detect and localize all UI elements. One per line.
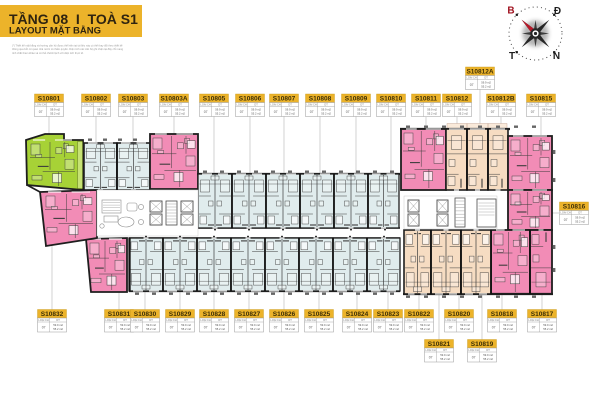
svg-text:S10817: S10817 xyxy=(531,311,554,318)
svg-text:DT: DT xyxy=(361,318,365,322)
svg-text:59.9 m2: 59.9 m2 xyxy=(575,216,585,220)
svg-text:DT: DT xyxy=(218,318,222,322)
svg-text:DT: DT xyxy=(149,318,153,322)
svg-text:DT: DT xyxy=(178,103,182,107)
svg-text:59.9 m2: 59.9 m2 xyxy=(251,108,261,112)
svg-text:07: 07 xyxy=(135,325,139,329)
svg-text:LOẠI CH: LOẠI CH xyxy=(200,318,211,322)
svg-text:DT: DT xyxy=(324,103,328,107)
svg-text:07: 07 xyxy=(42,325,46,329)
svg-text:LOẠI CH: LOẠI CH xyxy=(306,103,317,107)
svg-text:55.2 m2: 55.2 m2 xyxy=(483,357,493,361)
svg-text:59.9 m2: 59.9 m2 xyxy=(250,323,260,327)
svg-text:N: N xyxy=(553,51,560,62)
svg-text:S10811: S10811 xyxy=(415,96,437,103)
svg-text:07: 07 xyxy=(470,83,474,87)
svg-text:DT: DT xyxy=(123,318,127,322)
svg-text:LOẠI CH: LOẠI CH xyxy=(235,318,246,322)
svg-text:LOẠI CH: LOẠI CH xyxy=(425,348,436,352)
svg-text:S10827: S10827 xyxy=(238,311,261,318)
svg-text:S10809: S10809 xyxy=(345,96,368,103)
svg-text:S10822: S10822 xyxy=(408,311,431,318)
svg-text:55.2 m2: 55.2 m2 xyxy=(215,112,225,116)
svg-text:55.2 m2: 55.2 m2 xyxy=(146,327,156,331)
svg-text:59.9 m2: 59.9 m2 xyxy=(460,323,470,327)
svg-text:LOẠI CH: LOẠI CH xyxy=(343,318,354,322)
svg-text:thông qua bởi cơ quan nhà nước: thông qua bởi cơ quan nhà nước có thẩm q… xyxy=(12,47,124,51)
svg-text:LOẠI CH: LOẠI CH xyxy=(528,318,539,322)
svg-text:S10830: S10830 xyxy=(134,311,157,318)
svg-text:DT: DT xyxy=(505,103,509,107)
svg-text:DT: DT xyxy=(323,318,327,322)
svg-text:LAYOUT MẶT BẰNG: LAYOUT MẶT BẰNG xyxy=(9,26,101,37)
svg-text:LOẠI CH: LOẠI CH xyxy=(82,103,93,107)
svg-text:59.9 m2: 59.9 m2 xyxy=(50,108,60,112)
svg-text:59.9 m2: 59.9 m2 xyxy=(357,108,367,112)
svg-text:07: 07 xyxy=(492,325,496,329)
svg-text:07: 07 xyxy=(204,325,208,329)
svg-text:59.9 m2: 59.9 m2 xyxy=(321,108,331,112)
svg-text:59.9 m2: 59.9 m2 xyxy=(502,108,512,112)
svg-text:07: 07 xyxy=(416,110,420,114)
svg-text:S10816: S10816 xyxy=(563,204,586,211)
svg-text:LOẠI CH: LOẠI CH xyxy=(560,211,571,215)
svg-text:DT: DT xyxy=(53,103,57,107)
svg-text:LOẠI CH: LOẠI CH xyxy=(270,318,281,322)
svg-text:DT: DT xyxy=(545,103,549,107)
svg-text:S10810: S10810 xyxy=(380,96,403,103)
svg-text:59.9 m2: 59.9 m2 xyxy=(285,323,295,327)
svg-text:DT: DT xyxy=(443,348,447,352)
svg-text:LOẠI CH: LOẠI CH xyxy=(119,103,130,107)
svg-text:59.9 m2: 59.9 m2 xyxy=(53,323,63,327)
svg-text:55.2 m2: 55.2 m2 xyxy=(181,327,191,331)
svg-text:55.2 m2: 55.2 m2 xyxy=(97,112,107,116)
svg-text:59.9 m2: 59.9 m2 xyxy=(120,323,130,327)
svg-text:59.9 m2: 59.9 m2 xyxy=(392,108,402,112)
svg-text:S10801: S10801 xyxy=(38,96,61,103)
svg-text:59.9 m2: 59.9 m2 xyxy=(440,353,450,357)
svg-text:LOẠI CH: LOẠI CH xyxy=(200,103,211,107)
svg-text:55.2 m2: 55.2 m2 xyxy=(502,112,512,116)
svg-text:B: B xyxy=(507,6,514,17)
svg-text:55.2 m2: 55.2 m2 xyxy=(420,327,430,331)
svg-text:LOẠI CH: LOẠI CH xyxy=(412,103,423,107)
svg-text:S10828: S10828 xyxy=(203,311,226,318)
svg-text:DT: DT xyxy=(254,103,258,107)
svg-text:59.9 m2: 59.9 m2 xyxy=(483,353,493,357)
svg-text:07: 07 xyxy=(239,325,243,329)
svg-text:55.2 m2: 55.2 m2 xyxy=(285,327,295,331)
svg-text:55.2 m2: 55.2 m2 xyxy=(440,357,450,361)
svg-text:55.2 m2: 55.2 m2 xyxy=(503,327,513,331)
svg-text:tính chất tham khảo và có thể: tính chất tham khảo và có thể chênh lệch… xyxy=(12,51,84,55)
svg-text:S10819: S10819 xyxy=(471,341,494,348)
svg-text:55.2 m2: 55.2 m2 xyxy=(50,112,60,116)
svg-text:07: 07 xyxy=(381,110,385,114)
svg-text:59.9 m2: 59.9 m2 xyxy=(175,108,185,112)
svg-text:07: 07 xyxy=(472,355,476,359)
svg-text:S10812: S10812 xyxy=(446,96,469,103)
svg-text:07: 07 xyxy=(109,325,113,329)
svg-text:S10824: S10824 xyxy=(346,311,369,318)
svg-text:LOẠI CH: LOẠI CH xyxy=(445,318,456,322)
svg-text:S10820: S10820 xyxy=(448,311,471,318)
svg-text:07: 07 xyxy=(123,110,127,114)
svg-text:DT: DT xyxy=(253,318,257,322)
svg-text:55.2 m2: 55.2 m2 xyxy=(285,112,295,116)
svg-text:59.9 m2: 59.9 m2 xyxy=(215,108,225,112)
svg-text:07: 07 xyxy=(429,355,433,359)
svg-text:55.2 m2: 55.2 m2 xyxy=(460,327,470,331)
svg-text:DT: DT xyxy=(288,318,292,322)
svg-text:DT: DT xyxy=(486,348,490,352)
svg-text:07: 07 xyxy=(532,325,536,329)
svg-text:LOẠI CH: LOẠI CH xyxy=(166,318,177,322)
svg-text:55.2 m2: 55.2 m2 xyxy=(543,327,553,331)
svg-text:07: 07 xyxy=(240,110,244,114)
svg-text:LOẠI CH: LOẠI CH xyxy=(160,103,171,107)
svg-text:59.9 m2: 59.9 m2 xyxy=(320,323,330,327)
svg-text:55.2 m2: 55.2 m2 xyxy=(542,112,552,116)
svg-text:S10815: S10815 xyxy=(530,96,553,103)
svg-text:LOẠI CH: LOẠI CH xyxy=(377,103,388,107)
svg-text:S10803: S10803 xyxy=(122,96,145,103)
svg-text:07: 07 xyxy=(447,110,451,114)
svg-text:07: 07 xyxy=(274,325,278,329)
svg-text:07: 07 xyxy=(346,110,350,114)
svg-text:55.2 m2: 55.2 m2 xyxy=(251,112,261,116)
svg-text:07: 07 xyxy=(164,110,168,114)
svg-text:LOẠI CH: LOẠI CH xyxy=(342,103,353,107)
svg-text:59.9 m2: 59.9 m2 xyxy=(181,323,191,327)
svg-text:DT: DT xyxy=(423,318,427,322)
svg-text:S10818: S10818 xyxy=(491,311,514,318)
svg-text:Đ: Đ xyxy=(554,6,561,17)
svg-text:55.2 m2: 55.2 m2 xyxy=(358,327,368,331)
svg-text:DT: DT xyxy=(463,318,467,322)
svg-text:07: 07 xyxy=(274,110,278,114)
svg-text:DT: DT xyxy=(288,103,292,107)
svg-text:DT: DT xyxy=(184,318,188,322)
svg-text:S10821: S10821 xyxy=(428,341,451,348)
svg-text:59.9 m2: 59.9 m2 xyxy=(215,323,225,327)
svg-text:07: 07 xyxy=(449,325,453,329)
svg-text:55.2 m2: 55.2 m2 xyxy=(250,327,260,331)
svg-text:S10812B: S10812B xyxy=(487,96,514,103)
svg-text:55.2 m2: 55.2 m2 xyxy=(392,112,402,116)
svg-text:LOẠI CH: LOẠI CH xyxy=(236,103,247,107)
svg-text:55.2 m2: 55.2 m2 xyxy=(134,112,144,116)
svg-text:07: 07 xyxy=(39,110,43,114)
svg-text:59.9 m2: 59.9 m2 xyxy=(146,323,156,327)
svg-text:55.2 m2: 55.2 m2 xyxy=(427,112,437,116)
svg-text:07: 07 xyxy=(531,110,535,114)
svg-text:07: 07 xyxy=(564,218,568,222)
svg-text:55.2 m2: 55.2 m2 xyxy=(175,112,185,116)
svg-text:DT: DT xyxy=(56,318,60,322)
svg-text:S10808: S10808 xyxy=(309,96,332,103)
svg-text:DT: DT xyxy=(392,318,396,322)
svg-text:LOẠI CH: LOẠI CH xyxy=(405,318,416,322)
svg-text:S10831: S10831 xyxy=(108,311,131,318)
svg-text:59.9 m2: 59.9 m2 xyxy=(543,323,553,327)
svg-text:07: 07 xyxy=(86,110,90,114)
svg-text:DT: DT xyxy=(578,211,582,215)
svg-text:LOẠI CH: LOẠI CH xyxy=(487,103,498,107)
svg-text:59.9 m2: 59.9 m2 xyxy=(503,323,513,327)
svg-text:59.9 m2: 59.9 m2 xyxy=(358,323,368,327)
svg-text:59.9 m2: 59.9 m2 xyxy=(542,108,552,112)
svg-text:59.9 m2: 59.9 m2 xyxy=(420,323,430,327)
svg-text:S10807: S10807 xyxy=(273,96,296,103)
svg-text:59.9 m2: 59.9 m2 xyxy=(134,108,144,112)
svg-text:55.2 m2: 55.2 m2 xyxy=(53,327,63,331)
svg-text:S10829: S10829 xyxy=(169,311,192,318)
svg-text:LOẠI CH: LOẠI CH xyxy=(105,318,116,322)
svg-text:07: 07 xyxy=(491,110,495,114)
svg-text:S10806: S10806 xyxy=(239,96,262,103)
svg-text:07: 07 xyxy=(170,325,174,329)
svg-text:S10803A: S10803A xyxy=(160,96,187,103)
svg-text:LOẠI CH: LOẠI CH xyxy=(35,103,46,107)
svg-text:T: T xyxy=(509,51,515,62)
svg-text:S10805: S10805 xyxy=(203,96,226,103)
svg-text:S10802: S10802 xyxy=(85,96,108,103)
svg-text:DT: DT xyxy=(461,103,465,107)
svg-text:59.9 m2: 59.9 m2 xyxy=(458,108,468,112)
svg-text:LOẠI CH: LOẠI CH xyxy=(468,348,479,352)
svg-text:07: 07 xyxy=(204,110,208,114)
svg-text:DT: DT xyxy=(137,103,141,107)
svg-text:LOẠI CH: LOẠI CH xyxy=(527,103,538,107)
svg-text:DT: DT xyxy=(546,318,550,322)
svg-text:59.9 m2: 59.9 m2 xyxy=(427,108,437,112)
svg-text:55.2 m2: 55.2 m2 xyxy=(481,85,491,89)
svg-text:LOẠI CH: LOẠI CH xyxy=(270,103,281,107)
svg-text:59.9 m2: 59.9 m2 xyxy=(481,81,491,85)
svg-text:LOẠI CH: LOẠI CH xyxy=(38,318,49,322)
svg-text:07: 07 xyxy=(309,325,313,329)
svg-text:59.9 m2: 59.9 m2 xyxy=(285,108,295,112)
svg-text:S10825: S10825 xyxy=(308,311,331,318)
svg-text:55.2 m2: 55.2 m2 xyxy=(215,327,225,331)
svg-text:59.9 m2: 59.9 m2 xyxy=(97,108,107,112)
svg-text:DT: DT xyxy=(430,103,434,107)
svg-text:07: 07 xyxy=(310,110,314,114)
svg-text:55.2 m2: 55.2 m2 xyxy=(320,327,330,331)
svg-text:DT: DT xyxy=(506,318,510,322)
svg-text:LOẠI CH: LOẠI CH xyxy=(305,318,316,322)
svg-text:55.2 m2: 55.2 m2 xyxy=(120,327,130,331)
svg-text:55.2 m2: 55.2 m2 xyxy=(389,327,399,331)
svg-text:DT: DT xyxy=(360,103,364,107)
svg-text:LOẠI CH: LOẠI CH xyxy=(443,103,454,107)
svg-text:LOẠI CH: LOẠI CH xyxy=(374,318,385,322)
svg-text:DT: DT xyxy=(218,103,222,107)
svg-text:DT: DT xyxy=(484,76,488,80)
svg-text:55.2 m2: 55.2 m2 xyxy=(321,112,331,116)
svg-text:07: 07 xyxy=(347,325,351,329)
svg-text:55.2 m2: 55.2 m2 xyxy=(458,112,468,116)
svg-text:S10812A: S10812A xyxy=(466,69,493,76)
svg-text:07: 07 xyxy=(409,325,413,329)
svg-text:S10826: S10826 xyxy=(273,311,296,318)
svg-text:55.2 m2: 55.2 m2 xyxy=(357,112,367,116)
svg-text:55.2 m2: 55.2 m2 xyxy=(575,220,585,224)
svg-text:LOẠI CH: LOẠI CH xyxy=(466,76,477,80)
svg-text:DT: DT xyxy=(395,103,399,107)
svg-text:LOẠI CH: LOẠI CH xyxy=(488,318,499,322)
svg-text:S10823: S10823 xyxy=(377,311,400,318)
svg-text:LOẠI CH: LOẠI CH xyxy=(131,318,142,322)
svg-text:07: 07 xyxy=(378,325,382,329)
svg-text:DT: DT xyxy=(100,103,104,107)
svg-text:S10832: S10832 xyxy=(41,311,64,318)
svg-text:59.9 m2: 59.9 m2 xyxy=(389,323,399,327)
